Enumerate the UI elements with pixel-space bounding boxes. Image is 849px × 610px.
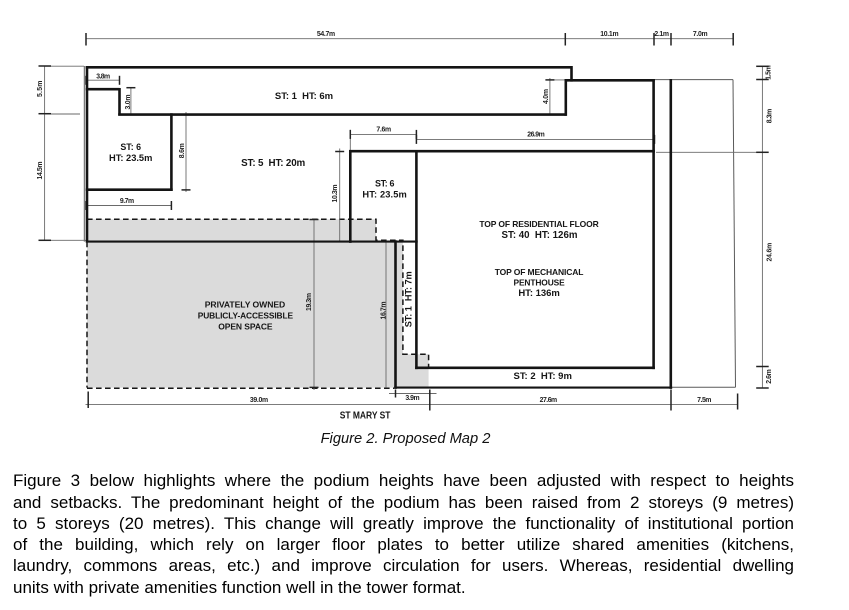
svg-text:TOP OF MECHANICAL: TOP OF MECHANICAL xyxy=(495,267,584,277)
svg-text:7.5m: 7.5m xyxy=(697,397,711,404)
svg-text:19.3m: 19.3m xyxy=(306,293,313,311)
svg-text:PENTHOUSE: PENTHOUSE xyxy=(514,277,566,287)
svg-text:ST: 5 HT: 20m: ST: 5 HT: 20m xyxy=(241,158,305,169)
svg-text:ST: 2 HT: 9m: ST: 2 HT: 9m xyxy=(514,371,572,382)
svg-text:7.0m: 7.0m xyxy=(693,31,708,38)
svg-text:HT: 23.5m: HT: 23.5m xyxy=(362,190,406,200)
svg-text:ST: 40 HT: 126m: ST: 40 HT: 126m xyxy=(502,230,578,241)
svg-text:ST: 6: ST: 6 xyxy=(375,179,395,189)
svg-text:24.6m: 24.6m xyxy=(767,243,774,262)
svg-text:HT: 136m: HT: 136m xyxy=(518,288,560,299)
svg-text:4.0m: 4.0m xyxy=(543,89,550,104)
svg-text:26.9m: 26.9m xyxy=(527,132,545,139)
svg-text:ST: 1 HT: 7m: ST: 1 HT: 7m xyxy=(404,271,414,327)
svg-text:27.6m: 27.6m xyxy=(540,397,558,404)
svg-text:10.1m: 10.1m xyxy=(600,31,618,38)
svg-text:9.7m: 9.7m xyxy=(120,198,134,205)
svg-text:1.5m: 1.5m xyxy=(765,65,772,80)
svg-text:PUBLICLY-ACCESSIBLE: PUBLICLY-ACCESSIBLE xyxy=(198,311,294,321)
svg-text:HT: 23.5m: HT: 23.5m xyxy=(109,153,152,163)
svg-text:TOP OF RESIDENTIAL FLOOR: TOP OF RESIDENTIAL FLOOR xyxy=(479,219,598,229)
svg-text:ST MARY ST: ST MARY ST xyxy=(340,411,391,422)
svg-text:10.3m: 10.3m xyxy=(332,185,339,203)
svg-text:5.5m: 5.5m xyxy=(37,81,44,98)
svg-text:3.8m: 3.8m xyxy=(96,73,110,80)
svg-text:3.0m: 3.0m xyxy=(125,95,132,110)
svg-text:16.7m: 16.7m xyxy=(380,302,387,320)
svg-text:8.3m: 8.3m xyxy=(767,109,774,124)
svg-text:8.6m: 8.6m xyxy=(179,143,186,158)
svg-text:ST: 1 HT: 6m: ST: 1 HT: 6m xyxy=(275,91,333,102)
svg-text:54.7m: 54.7m xyxy=(317,31,335,38)
svg-text:PRIVATELY OWNED: PRIVATELY OWNED xyxy=(205,299,286,309)
svg-text:7.6m: 7.6m xyxy=(376,126,391,133)
svg-text:39.0m: 39.0m xyxy=(250,397,268,404)
svg-text:OPEN SPACE: OPEN SPACE xyxy=(218,321,273,331)
svg-text:2.6m: 2.6m xyxy=(766,369,773,384)
svg-text:14.5m: 14.5m xyxy=(37,162,44,180)
svg-text:3.9m: 3.9m xyxy=(405,395,419,402)
svg-text:ST: 6: ST: 6 xyxy=(120,142,141,152)
svg-text:2.1m: 2.1m xyxy=(654,31,669,38)
